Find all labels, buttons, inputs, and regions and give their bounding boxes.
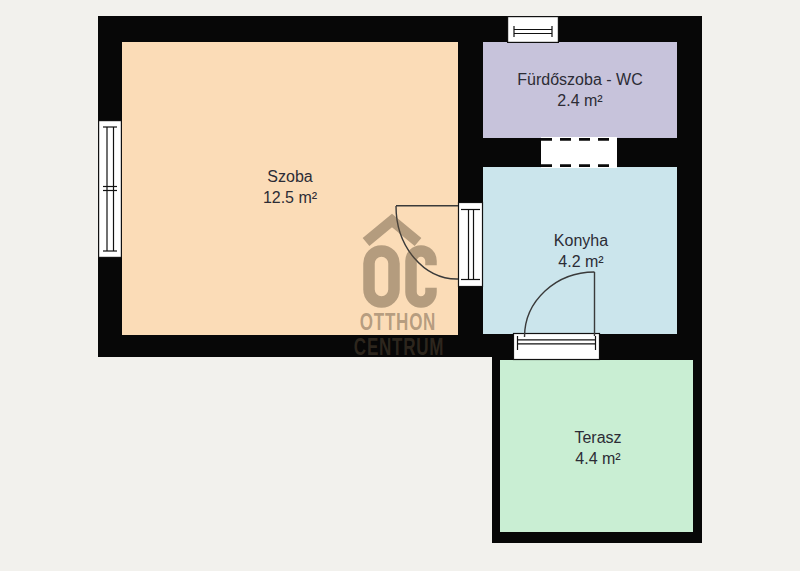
floor-plan-drawing xyxy=(0,0,800,571)
label-konyha: Konyha 4.2 m² xyxy=(554,230,608,272)
room-name: Konyha xyxy=(554,232,608,249)
watermark-centrum: CENTRUM xyxy=(354,336,444,359)
room-name: Szoba xyxy=(267,168,312,185)
room-area: 2.4 m² xyxy=(557,92,602,109)
room-area: 4.4 m² xyxy=(575,450,620,467)
open-passage-icon xyxy=(541,137,617,168)
label-szoba: Szoba 12.5 m² xyxy=(263,166,317,208)
room-name: Fürdőszoba - WC xyxy=(517,71,642,88)
room-area: 12.5 m² xyxy=(263,189,317,206)
label-furdoszoba: Fürdőszoba - WC 2.4 m² xyxy=(517,69,642,111)
room-area: 4.2 m² xyxy=(558,253,603,270)
floor-plan: OTTHON CENTRUM Szoba 12.5 m² Fürdőszoba … xyxy=(0,0,800,571)
room-name: Terasz xyxy=(574,429,621,446)
window-north-icon xyxy=(508,17,559,43)
watermark-otthon: OTTHON xyxy=(360,311,436,334)
window-west-icon xyxy=(99,121,122,258)
label-terasz: Terasz 4.4 m² xyxy=(574,427,621,469)
